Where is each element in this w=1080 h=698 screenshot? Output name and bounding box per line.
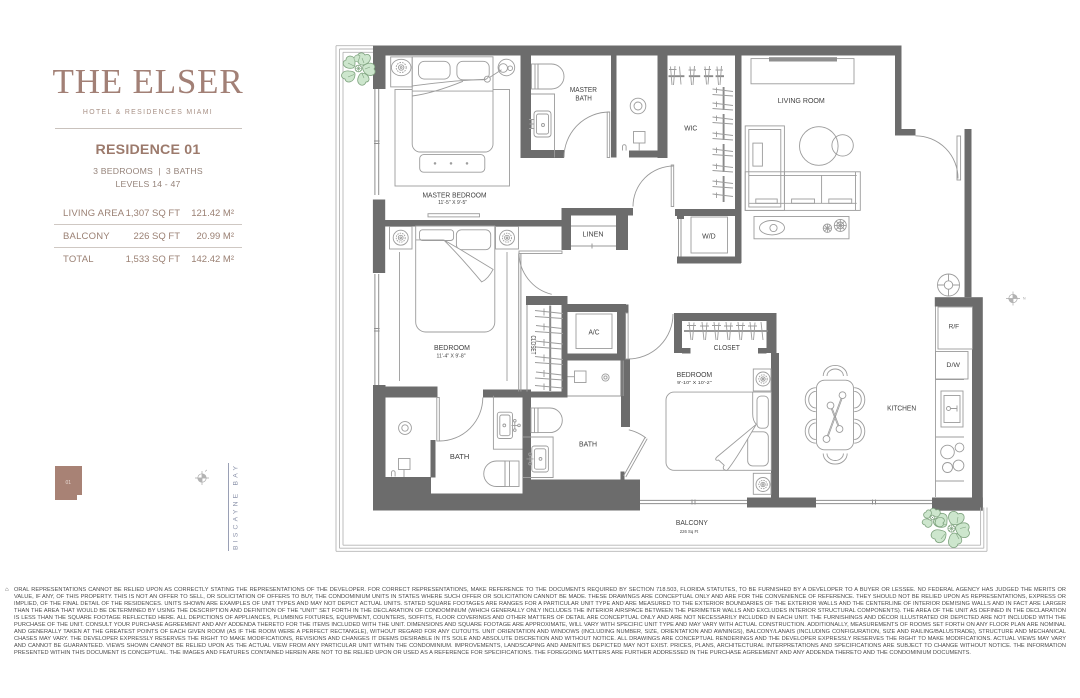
svg-text:CLOSET: CLOSET xyxy=(714,345,741,352)
svg-text:WIC: WIC xyxy=(684,124,697,133)
svg-text:11'-5" X 9'-5": 11'-5" X 9'-5" xyxy=(438,200,467,206)
svg-text:BEDROOM: BEDROOM xyxy=(677,370,713,379)
svg-text:11'-4" X 9'-8": 11'-4" X 9'-8" xyxy=(437,354,466,360)
svg-text:BATH: BATH xyxy=(575,94,592,103)
svg-text:W/D: W/D xyxy=(702,234,716,241)
svg-text:BEDROOM: BEDROOM xyxy=(434,343,470,352)
svg-text:BATH: BATH xyxy=(450,452,470,461)
svg-text:LIVING ROOM: LIVING ROOM xyxy=(778,96,825,105)
svg-text:CLOSET: CLOSET xyxy=(529,336,536,355)
svg-text:BATH: BATH xyxy=(579,440,597,449)
svg-text:9'-10" X 10'-2": 9'-10" X 10'-2" xyxy=(677,380,712,386)
svg-text:MASTER BEDROOM: MASTER BEDROOM xyxy=(423,191,487,200)
svg-text:BISCAYNE BAY: BISCAYNE BAY xyxy=(233,464,240,550)
svg-text:KITCHEN: KITCHEN xyxy=(887,404,916,413)
svg-text:226 Sq Ft: 226 Sq Ft xyxy=(680,529,699,535)
svg-text:A/C: A/C xyxy=(589,329,600,336)
svg-text:D/W: D/W xyxy=(946,362,960,369)
svg-text:LINEN: LINEN xyxy=(583,230,604,239)
svg-text:R/F: R/F xyxy=(949,323,960,330)
svg-text:N: N xyxy=(1023,297,1026,301)
svg-text:MASTER: MASTER xyxy=(570,85,597,94)
svg-text:BALCONY: BALCONY xyxy=(676,518,708,527)
